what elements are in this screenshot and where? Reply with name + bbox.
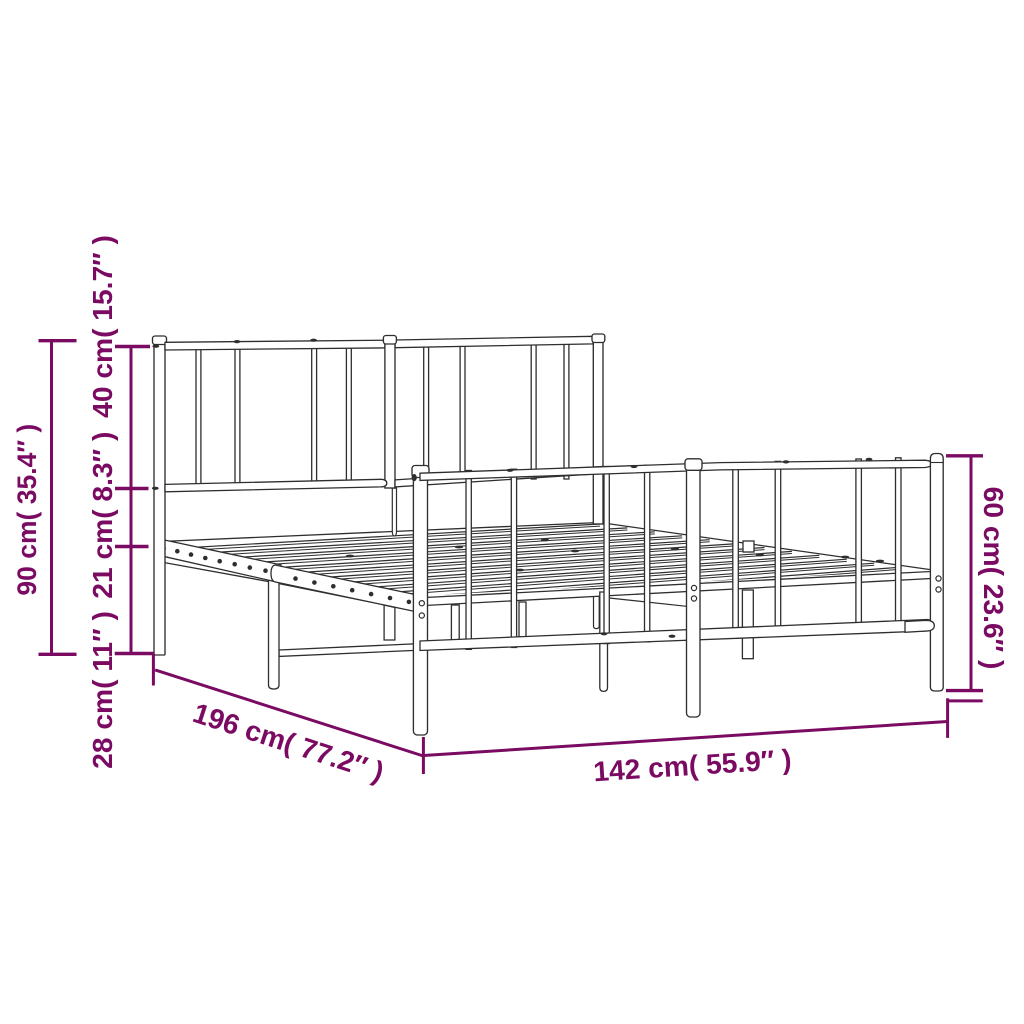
svg-text:28 cm( 11″ ): 28 cm( 11″ ) — [86, 611, 118, 769]
svg-text:90 cm( 35.4″ ): 90 cm( 35.4″ ) — [12, 424, 42, 596]
svg-text:21 cm( 8.3″ ): 21 cm( 8.3″ ) — [86, 432, 118, 599]
svg-text:40 cm( 15.7″ ): 40 cm( 15.7″ ) — [86, 235, 118, 418]
svg-text:60 cm( 23.6″ ): 60 cm( 23.6″ ) — [978, 487, 1010, 670]
